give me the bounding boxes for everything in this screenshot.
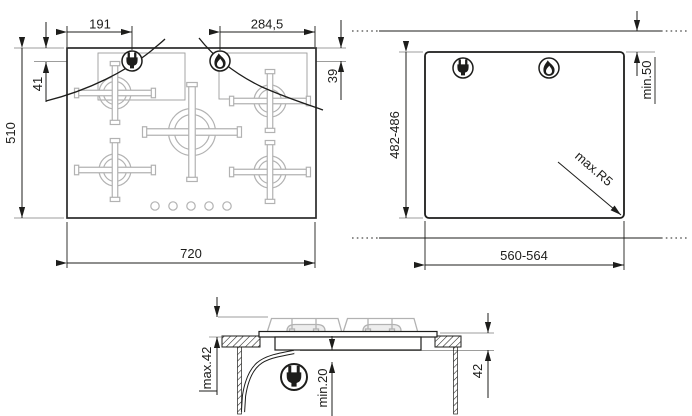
plug-icon — [122, 51, 142, 71]
dim-gas-offset-y: 39 — [325, 20, 341, 100]
dim-cutout-depth: 482-486 — [387, 52, 423, 218]
dim-electric-offset-y: 41 — [30, 22, 46, 102]
hob-body-section — [275, 337, 421, 350]
dim-width: 720 — [67, 222, 315, 268]
dim-label: 482-486 — [387, 111, 402, 159]
cutout-outline — [425, 52, 624, 218]
hob-top-view: 191 284,5 510 41 39 — [3, 17, 346, 269]
dim-label: min.50 — [639, 60, 654, 99]
worktop-cutout-view: 482-486 min.50 max.R5 560-564 — [352, 11, 688, 270]
dim-label: 284,5 — [251, 17, 284, 32]
side-section-view: max.42 min.20 42 — [199, 297, 494, 416]
dim-label: 720 — [180, 246, 202, 261]
dim-electric-offset-x: 191 — [67, 17, 132, 51]
worktop-section-left — [222, 336, 260, 347]
dim-label: 39 — [325, 69, 340, 83]
cabinet-wall-right — [454, 347, 458, 414]
dim-rear-clearance: min.50 — [626, 11, 655, 104]
dim-label: 510 — [3, 122, 18, 144]
dim-label: 560-564 — [500, 248, 548, 263]
hob-glass-section — [259, 332, 437, 338]
dim-height-above-worktop: max.42 — [199, 297, 217, 395]
dim-label: min.20 — [315, 368, 330, 407]
cabinet-wall-left — [238, 347, 242, 414]
worktop-section-right — [435, 336, 461, 347]
flame-icon — [539, 58, 559, 78]
dim-depth: 510 — [3, 48, 22, 218]
pan-supports — [268, 319, 418, 332]
dim-gas-offset-x: 284,5 — [220, 17, 315, 51]
installation-drawing: 191 284,5 510 41 39 — [0, 0, 692, 416]
drawing-canvas: 191 284,5 510 41 39 — [0, 0, 692, 416]
flame-icon — [210, 51, 230, 71]
dim-label: 42 — [470, 364, 485, 378]
dim-cutout-width: 560-564 — [425, 221, 624, 270]
dim-label: 41 — [30, 77, 45, 91]
plug-icon — [281, 364, 307, 390]
dim-height-below-worktop: 42 — [470, 313, 488, 398]
dim-label: 191 — [89, 17, 111, 32]
plug-icon — [453, 58, 473, 78]
dim-label: max.42 — [199, 347, 214, 390]
